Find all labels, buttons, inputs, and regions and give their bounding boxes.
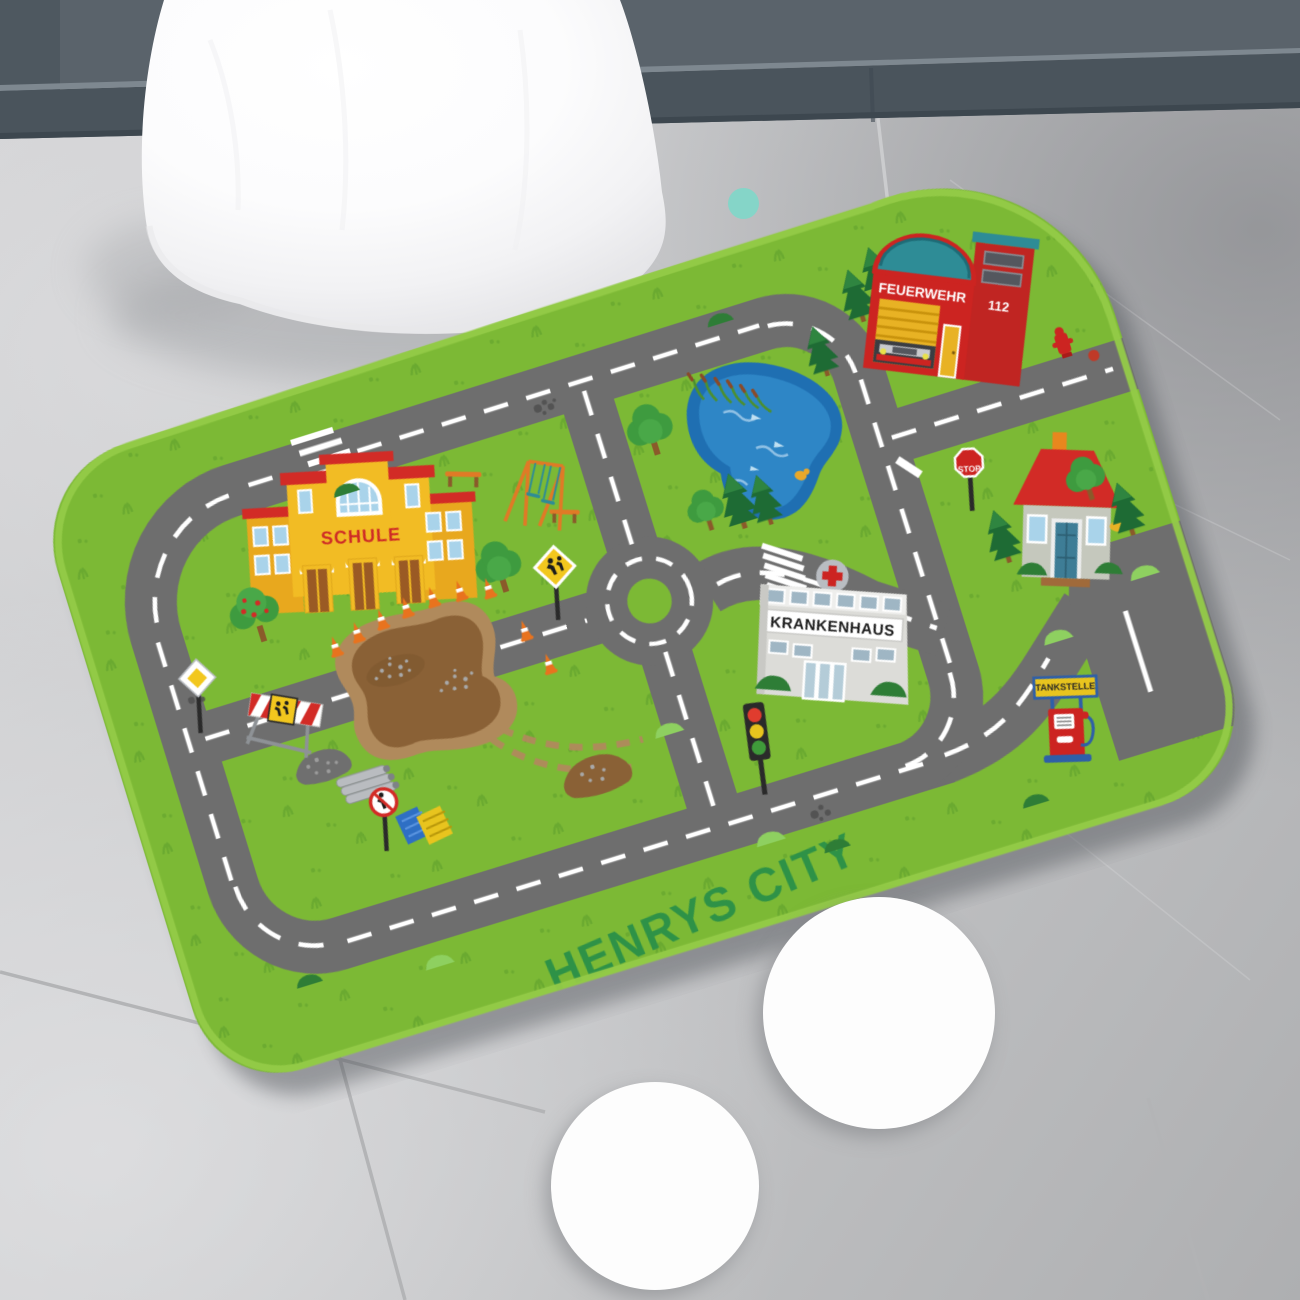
svg-text:112: 112: [987, 297, 1010, 315]
svg-text:SCHULE: SCHULE: [320, 524, 401, 549]
svg-text:STOP: STOP: [957, 463, 981, 474]
svg-text:TANKSTELLE: TANKSTELLE: [1035, 681, 1095, 693]
